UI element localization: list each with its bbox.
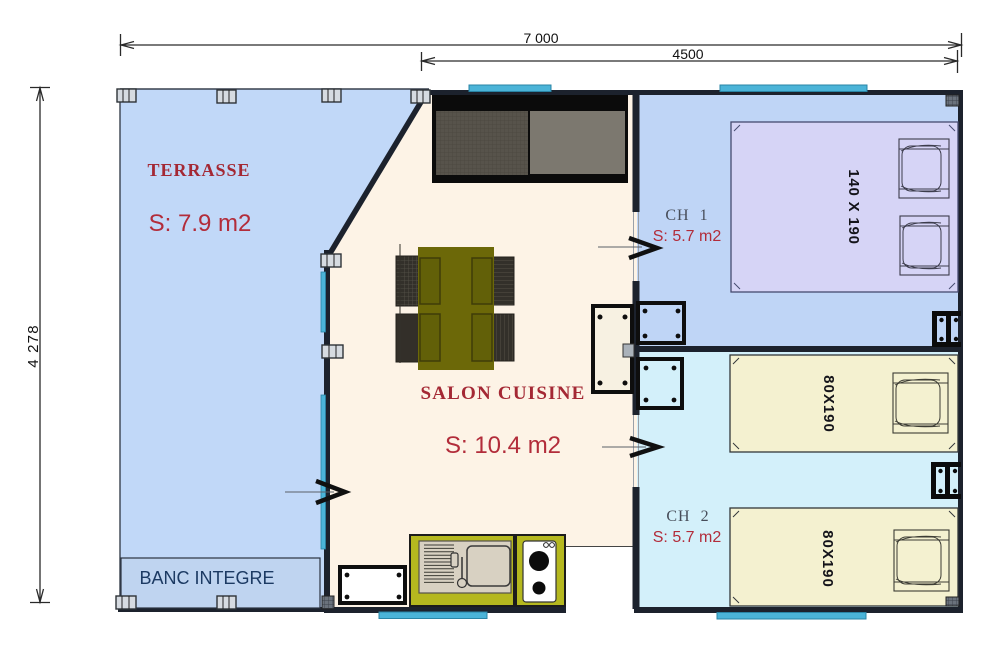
svg-text:S: 5.7 m2: S: 5.7 m2 [653,228,722,245]
svg-text:S: 10.4 m2: S: 10.4 m2 [445,432,561,459]
svg-text:CH 2: CH 2 [666,508,709,525]
svg-text:4 278: 4 278 [25,324,42,368]
svg-text:S: 5.7 m2: S: 5.7 m2 [653,529,722,546]
svg-text:80X190: 80X190 [819,530,836,588]
svg-text:140 X 190: 140 X 190 [845,169,862,245]
svg-text:BANC INTEGRE: BANC INTEGRE [139,568,274,588]
svg-text:7 000: 7 000 [523,30,558,46]
svg-text:4500: 4500 [672,46,703,62]
svg-text:TERRASSE: TERRASSE [147,160,250,180]
svg-text:SALON CUISINE: SALON CUISINE [420,383,585,404]
svg-text:80X190: 80X190 [820,375,837,433]
svg-text:CH 1: CH 1 [665,207,708,224]
svg-text:S: 7.9 m2: S: 7.9 m2 [149,210,252,237]
